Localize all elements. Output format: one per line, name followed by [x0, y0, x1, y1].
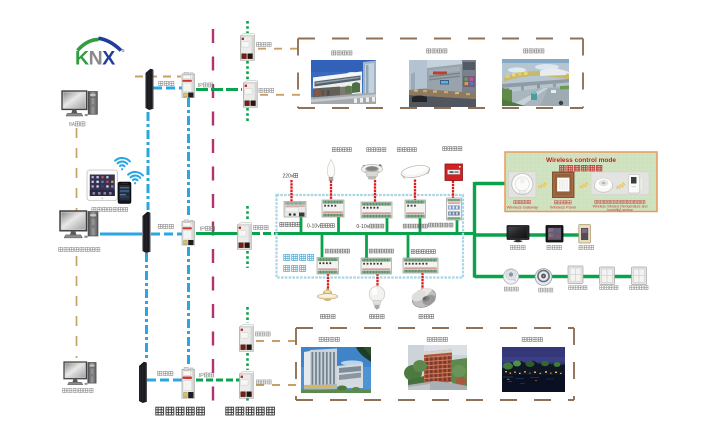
svg-text:0-10v: 0-10v	[356, 224, 370, 230]
svg-text:humidity) sensor: humidity) sensor	[607, 208, 634, 212]
svg-text:IP: IP	[200, 227, 206, 233]
svg-text:Wireless Panel: Wireless Panel	[550, 205, 576, 210]
svg-text:Wireless control mode: Wireless control mode	[546, 157, 617, 164]
svg-text:KNX: KNX	[75, 48, 115, 70]
svg-text:IP: IP	[198, 83, 204, 89]
svg-text:0-10v: 0-10v	[307, 224, 321, 230]
svg-text:220v: 220v	[282, 174, 293, 180]
svg-text:IP: IP	[199, 373, 205, 379]
svg-text:BA: BA	[69, 122, 75, 128]
svg-text:Wireless Gateway: Wireless Gateway	[507, 204, 538, 209]
